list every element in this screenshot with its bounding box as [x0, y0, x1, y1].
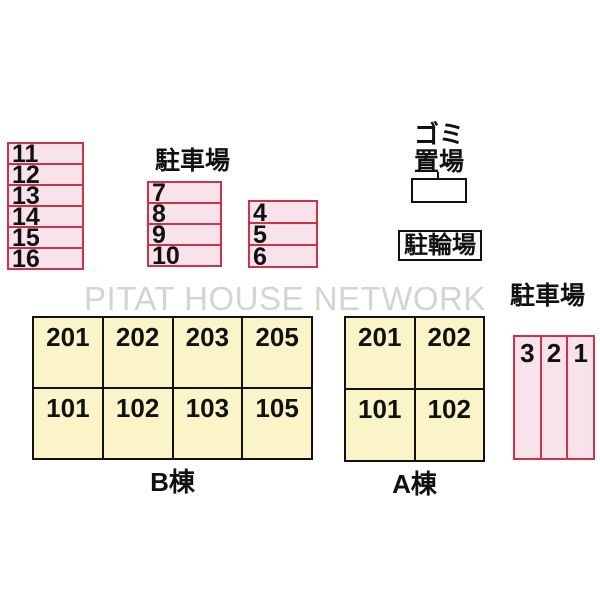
- room-cell: 101: [345, 389, 415, 461]
- room-cell: 201: [345, 317, 415, 389]
- room-cell: 102: [103, 388, 173, 459]
- room-cell: 102: [415, 389, 485, 461]
- room-cell: 201: [33, 317, 103, 388]
- parking-lot-label: 駐車場: [155, 141, 230, 177]
- bicycle-parking-label: 駐輪場: [398, 230, 482, 261]
- parking-space: 6: [248, 244, 318, 268]
- building-a-label: A棟: [344, 464, 485, 501]
- parking-space: 3: [513, 335, 542, 460]
- parking-stack-left: 11 12 13 14 15 16: [7, 142, 84, 270]
- building-a: 201 202 101 102: [344, 316, 485, 462]
- garbage-label-line2: 置場: [408, 149, 470, 176]
- site-plan-diagram: PITAT HOUSE NETWORK 11 12 13 14 15 16 駐車…: [0, 0, 600, 600]
- parking-stack-middle: 7 8 9 10: [147, 181, 222, 267]
- parking-stack-small: 4 5 6: [248, 200, 318, 268]
- building-b-label: B棟: [32, 462, 313, 499]
- parking-lot-label-right: 駐車場: [510, 276, 585, 312]
- room-cell: 101: [33, 388, 103, 459]
- parking-stack-vertical: 3 2 1: [513, 335, 595, 460]
- parking-space: 2: [540, 335, 569, 460]
- garbage-area-label: ゴミ 置場: [408, 122, 470, 176]
- garbage-box: [411, 178, 467, 203]
- room-cell: 105: [242, 388, 312, 459]
- room-cell: 103: [173, 388, 243, 459]
- room-cell: 205: [242, 317, 312, 388]
- garbage-label-line1: ゴミ: [408, 122, 470, 149]
- parking-space: 16: [7, 247, 84, 270]
- room-cell: 202: [103, 317, 173, 388]
- room-cell: 202: [415, 317, 485, 389]
- room-cell: 203: [173, 317, 243, 388]
- building-b: 201 202 203 205 101 102 103 105: [32, 316, 313, 460]
- parking-space: 10: [147, 244, 222, 267]
- parking-space: 1: [566, 335, 595, 460]
